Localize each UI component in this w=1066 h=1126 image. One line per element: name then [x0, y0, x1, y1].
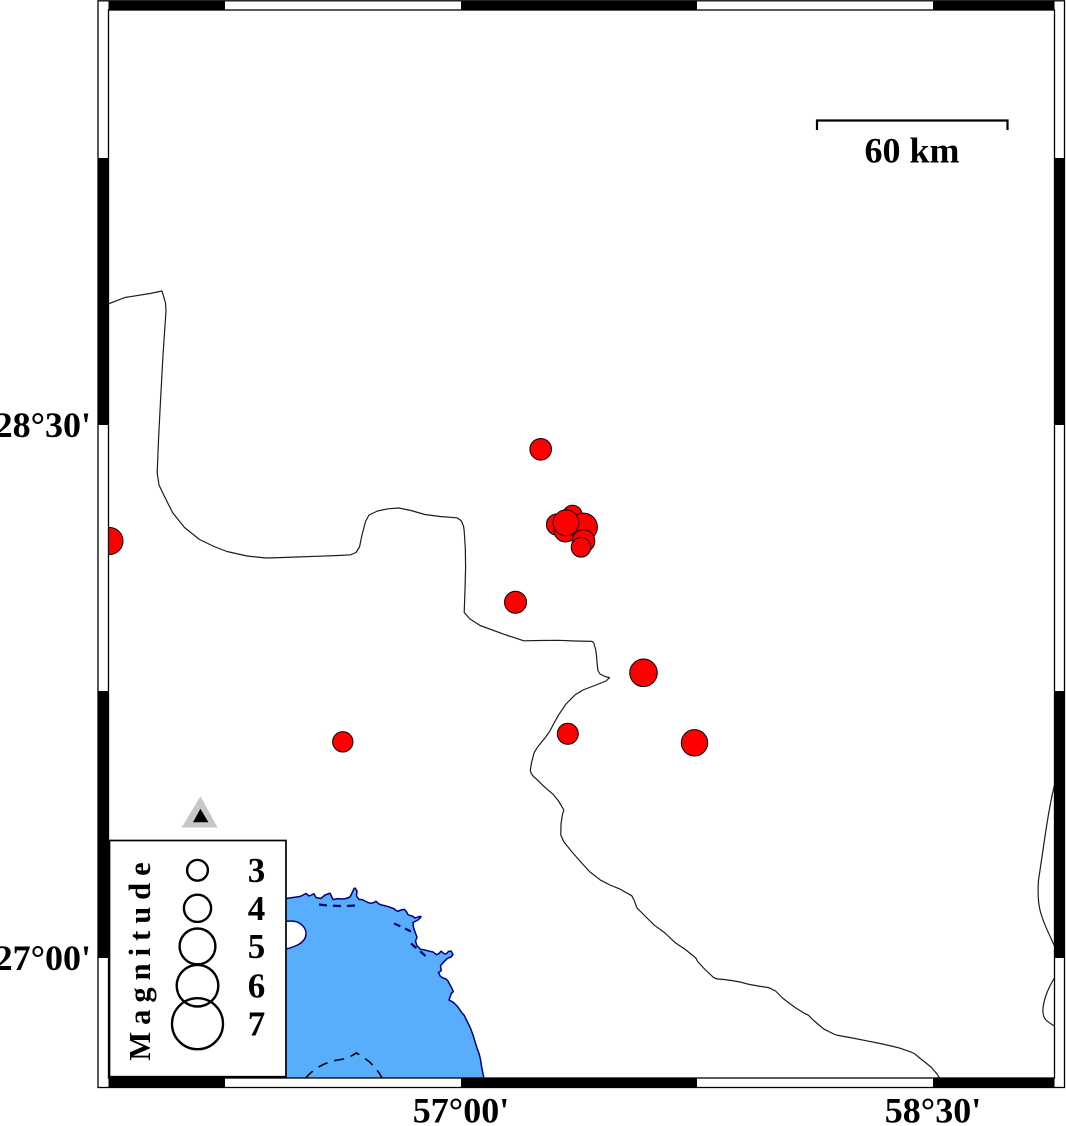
svg-text:58°30': 58°30' — [885, 1091, 981, 1126]
svg-text:4: 4 — [248, 889, 266, 928]
svg-text:28°30': 28°30' — [0, 405, 91, 445]
svg-text:5: 5 — [248, 927, 266, 966]
svg-text:27°00': 27°00' — [0, 938, 91, 978]
svg-text:6: 6 — [248, 966, 266, 1005]
svg-text:Magnitude: Magnitude — [123, 855, 157, 1060]
svg-text:7: 7 — [248, 1004, 266, 1043]
svg-text:57°00': 57°00' — [413, 1091, 509, 1126]
svg-text:3: 3 — [248, 851, 266, 890]
svg-text:60 km: 60 km — [864, 131, 959, 171]
